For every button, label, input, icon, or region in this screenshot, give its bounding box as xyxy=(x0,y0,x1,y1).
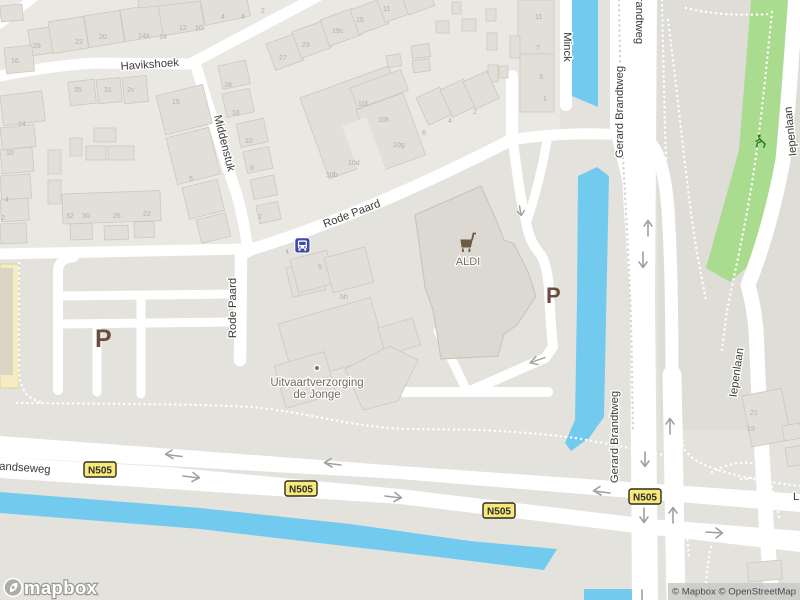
svg-text:10: 10 xyxy=(245,138,253,145)
svg-text:23: 23 xyxy=(302,42,310,49)
svg-text:2v: 2v xyxy=(127,87,135,94)
svg-text:L: L xyxy=(793,491,799,503)
svg-text:N505: N505 xyxy=(487,507,511,518)
svg-text:15: 15 xyxy=(356,17,364,24)
svg-text:mapbox: mapbox xyxy=(24,577,98,598)
svg-text:2: 2 xyxy=(473,109,477,116)
svg-text:16: 16 xyxy=(232,110,240,117)
svg-text:Gerard Brandtweg: Gerard Brandtweg xyxy=(614,66,626,158)
svg-text:de Jonge: de Jonge xyxy=(293,389,340,401)
svg-text:ALDI: ALDI xyxy=(456,256,480,268)
svg-text:19: 19 xyxy=(747,426,755,433)
svg-text:4: 4 xyxy=(241,14,245,21)
svg-text:2: 2 xyxy=(1,215,5,222)
svg-text:22: 22 xyxy=(75,39,83,46)
svg-text:18: 18 xyxy=(224,82,232,89)
svg-text:Gerard Brandtweg: Gerard Brandtweg xyxy=(609,391,621,483)
svg-text:N505: N505 xyxy=(88,466,112,477)
svg-text:35: 35 xyxy=(74,87,82,94)
svg-text:10b: 10b xyxy=(326,172,338,179)
svg-text:Uitvaartverzorging: Uitvaartverzorging xyxy=(270,377,363,389)
svg-text:12: 12 xyxy=(179,25,187,32)
svg-text:N505: N505 xyxy=(289,485,313,496)
svg-text:10f: 10f xyxy=(358,101,368,108)
svg-text:10h: 10h xyxy=(378,117,390,124)
svg-text:5h: 5h xyxy=(340,294,348,301)
svg-text:19c: 19c xyxy=(332,28,344,35)
svg-text:11: 11 xyxy=(383,6,390,13)
svg-text:N505: N505 xyxy=(633,493,657,504)
svg-text:32: 32 xyxy=(66,213,74,220)
svg-text:Gerard Brandtweg: Gerard Brandtweg xyxy=(633,0,645,44)
svg-text:29: 29 xyxy=(33,43,41,50)
svg-text:Minck: Minck xyxy=(561,32,573,62)
svg-text:2: 2 xyxy=(261,8,265,15)
svg-text:6: 6 xyxy=(250,165,254,172)
svg-text:3: 3 xyxy=(539,74,543,81)
svg-text:22: 22 xyxy=(143,211,151,218)
svg-text:4: 4 xyxy=(448,118,452,125)
svg-text:5: 5 xyxy=(189,176,193,183)
svg-text:© Mapbox © OpenStreetMap: © Mapbox © OpenStreetMap xyxy=(672,587,796,598)
svg-text:15: 15 xyxy=(172,99,180,106)
svg-text:10: 10 xyxy=(195,25,203,32)
svg-text:Rode Paard: Rode Paard xyxy=(227,278,239,338)
svg-text:31: 31 xyxy=(104,87,112,94)
svg-text:26: 26 xyxy=(113,213,121,220)
svg-text:30: 30 xyxy=(82,213,90,220)
svg-text:P: P xyxy=(95,325,112,353)
svg-text:11: 11 xyxy=(535,14,542,21)
svg-text:16: 16 xyxy=(11,58,19,65)
svg-text:1: 1 xyxy=(543,96,547,103)
svg-text:10: 10 xyxy=(6,150,14,157)
svg-text:10g: 10g xyxy=(393,142,405,149)
svg-text:14: 14 xyxy=(18,121,26,128)
svg-text:10d: 10d xyxy=(348,160,360,167)
svg-text:27: 27 xyxy=(279,55,287,62)
svg-text:14: 14 xyxy=(159,34,167,41)
svg-text:21: 21 xyxy=(750,410,758,417)
svg-text:14a: 14a xyxy=(138,33,150,40)
svg-text:4: 4 xyxy=(5,197,9,204)
svg-text:7: 7 xyxy=(536,45,540,52)
svg-text:4: 4 xyxy=(221,14,225,21)
svg-text:8: 8 xyxy=(422,130,426,137)
svg-text:5: 5 xyxy=(318,264,322,271)
svg-text:20: 20 xyxy=(99,34,107,41)
svg-text:2: 2 xyxy=(258,214,262,221)
svg-text:P: P xyxy=(546,283,561,308)
